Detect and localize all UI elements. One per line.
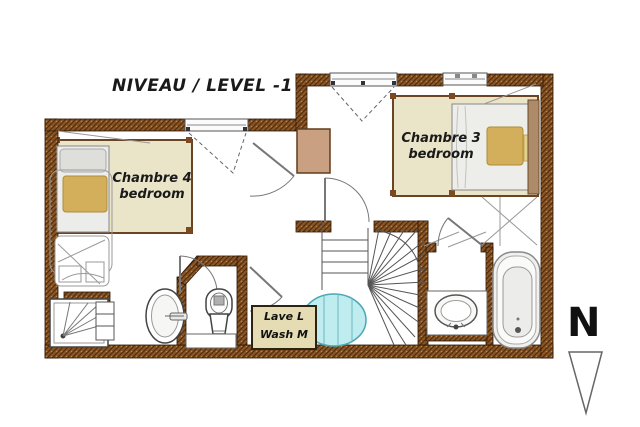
- washbasin-counter: [427, 291, 487, 335]
- bathtub: [493, 252, 540, 348]
- north-letter: N: [567, 300, 600, 346]
- north-arrow-triangle: [569, 352, 602, 413]
- room-label-chambre3: Chambre 3 bedroom: [385, 131, 497, 163]
- door-chambre4: [250, 143, 294, 196]
- wall-right: [541, 74, 553, 358]
- winder-treads: [368, 229, 425, 345]
- toilet: [206, 289, 232, 334]
- floor-plan-drawing: [0, 0, 640, 427]
- washing-machine-label-fr: Lave L: [253, 308, 315, 326]
- furniture-sketch-chambre4: [55, 236, 109, 286]
- washing-machine-label-en: Wash M: [253, 326, 315, 344]
- floor-plan-page: NIVEAU / LEVEL -1 Chambre 4 bedroom Cham…: [0, 0, 640, 427]
- wall-wc-right: [237, 256, 247, 345]
- chimney-flue: [297, 129, 330, 173]
- plan-title: NIVEAU / LEVEL -1: [112, 76, 293, 96]
- window-chambre3: [443, 73, 487, 85]
- wall-top-left-a: [45, 119, 185, 131]
- radiator: [186, 334, 236, 348]
- chambre4-name-en: bedroom: [96, 187, 208, 203]
- wall-top-right-b: [397, 74, 443, 86]
- chambre3-name-en: bedroom: [385, 147, 497, 163]
- wall-top-right-a: [296, 74, 330, 86]
- chambre4-name-fr: Chambre 4: [96, 171, 208, 187]
- window-hall-top: [330, 73, 397, 86]
- storage-cabinet: [96, 302, 114, 340]
- wall-top-left-b: [248, 119, 298, 131]
- chambre3-name-fr: Chambre 3: [385, 131, 497, 147]
- wall-hall-stairs-a: [296, 221, 331, 232]
- door-stairs: [325, 178, 369, 222]
- washing-machine-box: Lave L Wash M: [251, 305, 317, 350]
- room-label-chambre4: Chambre 4 bedroom: [96, 171, 208, 203]
- window-hall-left: [185, 119, 248, 131]
